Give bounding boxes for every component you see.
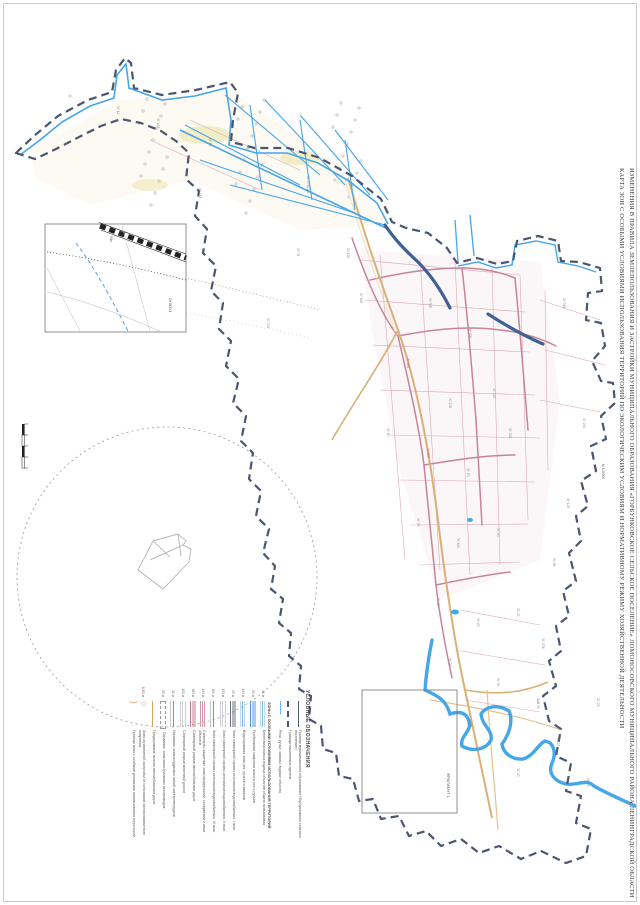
legend-item-label: Зона санитарной охраны источников водосн…	[212, 730, 216, 843]
legend-rows: Граница муниципального образования «Горб…	[128, 657, 302, 843]
legend-item: 50 мПрибрежная защитная полоса рек и руч…	[248, 657, 257, 843]
map-label: ЗУ 45	[476, 618, 480, 626]
map-label: ЗУ 127	[156, 118, 160, 128]
pond	[451, 610, 459, 615]
legend-item-code: 25 м	[162, 657, 167, 697]
terrain-wash-north	[30, 90, 390, 230]
map-label: ЗУ 60	[386, 428, 390, 436]
map-title-line1: ИЗМЕНЕНИЯ В ПРАВИЛА ЗЕМЛЕПОЛЬЗОВАНИЯ И З…	[626, 168, 636, 768]
map-label: ЗУ 30	[496, 678, 500, 686]
legend-item: 100 мСанитарный разрыв железной дороги	[178, 657, 187, 843]
legend-item: 20 мБереговая полоса водных объектов общ…	[258, 657, 267, 843]
legend-symbol	[191, 701, 197, 727]
legend-symbol	[201, 701, 207, 727]
map-sheet: ЗУ 127ЗУ 14ЗУ 85ЗУ 2700 АВЗУ 183ЗУ 51ЗУ …	[0, 0, 640, 905]
legend-symbol	[161, 701, 167, 729]
map-label: ЗУ 254	[582, 418, 586, 428]
legend-item: 150 мЗона санитарной охраны источников в…	[218, 657, 227, 843]
legend-item-label: Охранные зоны магистральных газопроводов	[162, 732, 166, 843]
map-label: М 1:25000	[601, 464, 605, 479]
map-label: ЗУ 300	[428, 298, 432, 308]
legend-symbol	[251, 701, 257, 727]
legend-item-code: 50 м	[232, 657, 237, 697]
legend-item: 50 мЗона санитарной охраны источников во…	[228, 657, 237, 843]
legend-item-label: Санитарный разрыв железной дороги	[182, 730, 186, 843]
legend-item: 300 мЗона санитарной охраны источников в…	[208, 657, 217, 843]
legend-item: Реки, ручьи, каналы, водные объекты	[274, 657, 283, 843]
map-label: ФРАГМЕНТ 1	[446, 773, 451, 798]
legend-item-code: 300 м	[212, 657, 217, 697]
legend-item: 1000 мЗона ограничений застройки от исто…	[138, 657, 147, 843]
legend-heading: УСЛОВНЫЕ ОБОЗНАЧЕНИЯ	[304, 690, 310, 843]
map-label: ЗУ 20	[516, 768, 520, 776]
legend-item-label: Граница зоны с особыми условиями использ…	[132, 730, 136, 843]
legend-item-label: Санитарно-защитные зоны предприятий, соо…	[198, 730, 206, 843]
legend-item: 100 мСанитарно-защитные зоны предприятий…	[198, 657, 207, 843]
map-label: ЗУ 20	[436, 598, 440, 606]
legend-item-label: Границы населённых пунктов	[288, 730, 292, 843]
legend-symbol	[241, 701, 247, 727]
legend-item-label: Зона санитарной охраны источников водосн…	[232, 730, 236, 843]
legend-item: Придорожные полосы автомобильных дорог	[148, 657, 157, 843]
fragment-inset	[362, 690, 457, 813]
legend-item-code	[136, 657, 137, 697]
legend-item-code: 150 м	[222, 657, 227, 697]
legend-item-label: Санитарный разрыв автомобильных дорог	[192, 730, 196, 843]
legend-item: Граница зоны с особыми условиями использ…	[128, 657, 137, 843]
legend-symbol	[288, 701, 290, 727]
legend-symbol	[141, 701, 147, 727]
legend-symbol	[261, 701, 267, 727]
legend-symbol	[298, 701, 299, 727]
detail-inset	[45, 223, 186, 333]
legend-symbol	[153, 701, 154, 727]
legend-item-label: Береговая полоса водных объектов общего …	[262, 730, 266, 843]
legend-symbol	[181, 701, 187, 727]
legend-item: 25 мОхранные зоны магистральных газопров…	[158, 657, 167, 843]
map-title-line2: КАРТА ЗОН С ОСОБЫМИ УСЛОВИЯМИ ИСПОЛЬЗОВА…	[616, 168, 626, 768]
legend: УСЛОВНЫЕ ОБОЗНАЧЕНИЯ Граница муниципальн…	[92, 657, 310, 843]
map-label: ЗУ 25	[556, 738, 560, 746]
scale-bar	[22, 424, 28, 468]
meandering-river	[425, 640, 635, 806]
legend-symbol	[276, 701, 282, 727]
map-label: ЗУ 51	[296, 248, 300, 256]
map-label: ЗУ 640	[456, 538, 460, 548]
map-label: ЗУ 320	[508, 428, 512, 438]
legend-symbol	[171, 701, 177, 727]
map-label: ЗУ 14	[116, 106, 120, 114]
map-label: ЗУ 600	[406, 358, 410, 368]
legend-item-code: 25 м	[172, 657, 177, 697]
legend-item-code: 1000 м	[142, 657, 147, 697]
legend-item-code: 20 м	[262, 657, 267, 697]
map-label: ЗУ 30	[496, 528, 500, 536]
legend-item: 300 мСанитарный разрыв автомобильных дор…	[188, 657, 197, 843]
map-label: ЗУ 85	[208, 138, 212, 146]
legend-item-code	[291, 657, 292, 697]
legend-item: 25 мОхранные зоны воздушных линий электр…	[168, 657, 177, 843]
map-label: ОУ ВОЗ.1	[168, 298, 172, 312]
legend-symbol	[131, 701, 137, 727]
map-label: ЗУ 25	[516, 608, 520, 616]
legend-item-label: Граница муниципального образования «Горб…	[294, 730, 302, 843]
legend-item: 100 мВодоохранная зона рек, ручьёв и кан…	[238, 657, 247, 843]
legend-symbol	[211, 701, 217, 727]
legend-item-code: 100 м	[182, 657, 187, 697]
legend-item-code	[281, 657, 282, 697]
legend-subheading: ЗОНЫ С ОСОБЫМИ УСЛОВИЯМИ ИСПОЛЬЗОВАНИЯ Т…	[268, 702, 272, 843]
map-label: ЗУ 183	[198, 188, 202, 198]
map-label: ЗУ 600	[359, 293, 363, 303]
legend-item-label: Водоохранная зона рек, ручьёв и каналов	[242, 730, 246, 843]
map-label: ЗУ 500	[468, 328, 472, 338]
facility-footprint	[138, 534, 191, 589]
legend-item-code	[301, 657, 302, 697]
map-label: ЗУ 20	[448, 658, 452, 666]
legend-item-code: 100 м	[242, 657, 247, 697]
legend-item-label: Придорожные полосы автомобильных дорог	[152, 730, 156, 843]
map-label: ЗУ 25	[416, 518, 420, 526]
legend-item-label: Зона санитарной охраны источников водосн…	[222, 730, 226, 843]
legend-item: Границы населённых пунктов	[284, 657, 293, 843]
map-label: ЗУ 23	[586, 778, 590, 786]
legend-item-label: Зона ограничений застройки от источников…	[138, 730, 146, 843]
legend-item-code	[156, 657, 157, 697]
map-label: ЗУ 318	[562, 298, 566, 308]
map-label: ЗУ 2ПК	[541, 638, 545, 649]
map-label: ЗУ 640	[426, 448, 430, 458]
legend-item: Граница муниципального образования «Горб…	[294, 657, 303, 843]
map-label: ЗУ 150	[346, 248, 350, 258]
map-label: ЗУ 254	[266, 318, 270, 328]
map-label: ЗУ 129	[566, 498, 570, 508]
legend-symbol	[231, 701, 237, 727]
legend-symbol	[221, 701, 227, 727]
map-label: ЗУ 120	[492, 388, 496, 398]
map-label: ЗУ 100	[448, 398, 452, 408]
pond	[467, 518, 473, 522]
terrain-wash-settlement	[360, 250, 560, 600]
map-label: ЗУ 50	[466, 468, 470, 476]
map-label: ЗАВ 30	[536, 698, 540, 709]
legend-item-label: Охранные зоны воздушных линий электропер…	[172, 730, 176, 843]
map-label: ЗУ 2700 АВ	[306, 176, 310, 193]
legend-item-label: Реки, ручьи, каналы, водные объекты	[278, 730, 282, 843]
map-label: 50м	[109, 236, 113, 242]
map-label: ЗУ 20	[466, 718, 470, 726]
meadow-patch	[132, 179, 168, 191]
map-label: ЗУ 86	[552, 558, 556, 566]
legend-item-code: 300 м	[192, 657, 197, 697]
legend-item-code: 50 м	[252, 657, 257, 697]
map-label: ЗУ 23	[596, 698, 600, 706]
legend-item-label: Прибрежная защитная полоса рек и ручьёв	[252, 730, 256, 843]
map-title: ИЗМЕНЕНИЯ В ПРАВИЛА ЗЕМЛЕПОЛЬЗОВАНИЯ И З…	[612, 168, 636, 768]
legend-item-code: 100 м	[202, 657, 207, 697]
